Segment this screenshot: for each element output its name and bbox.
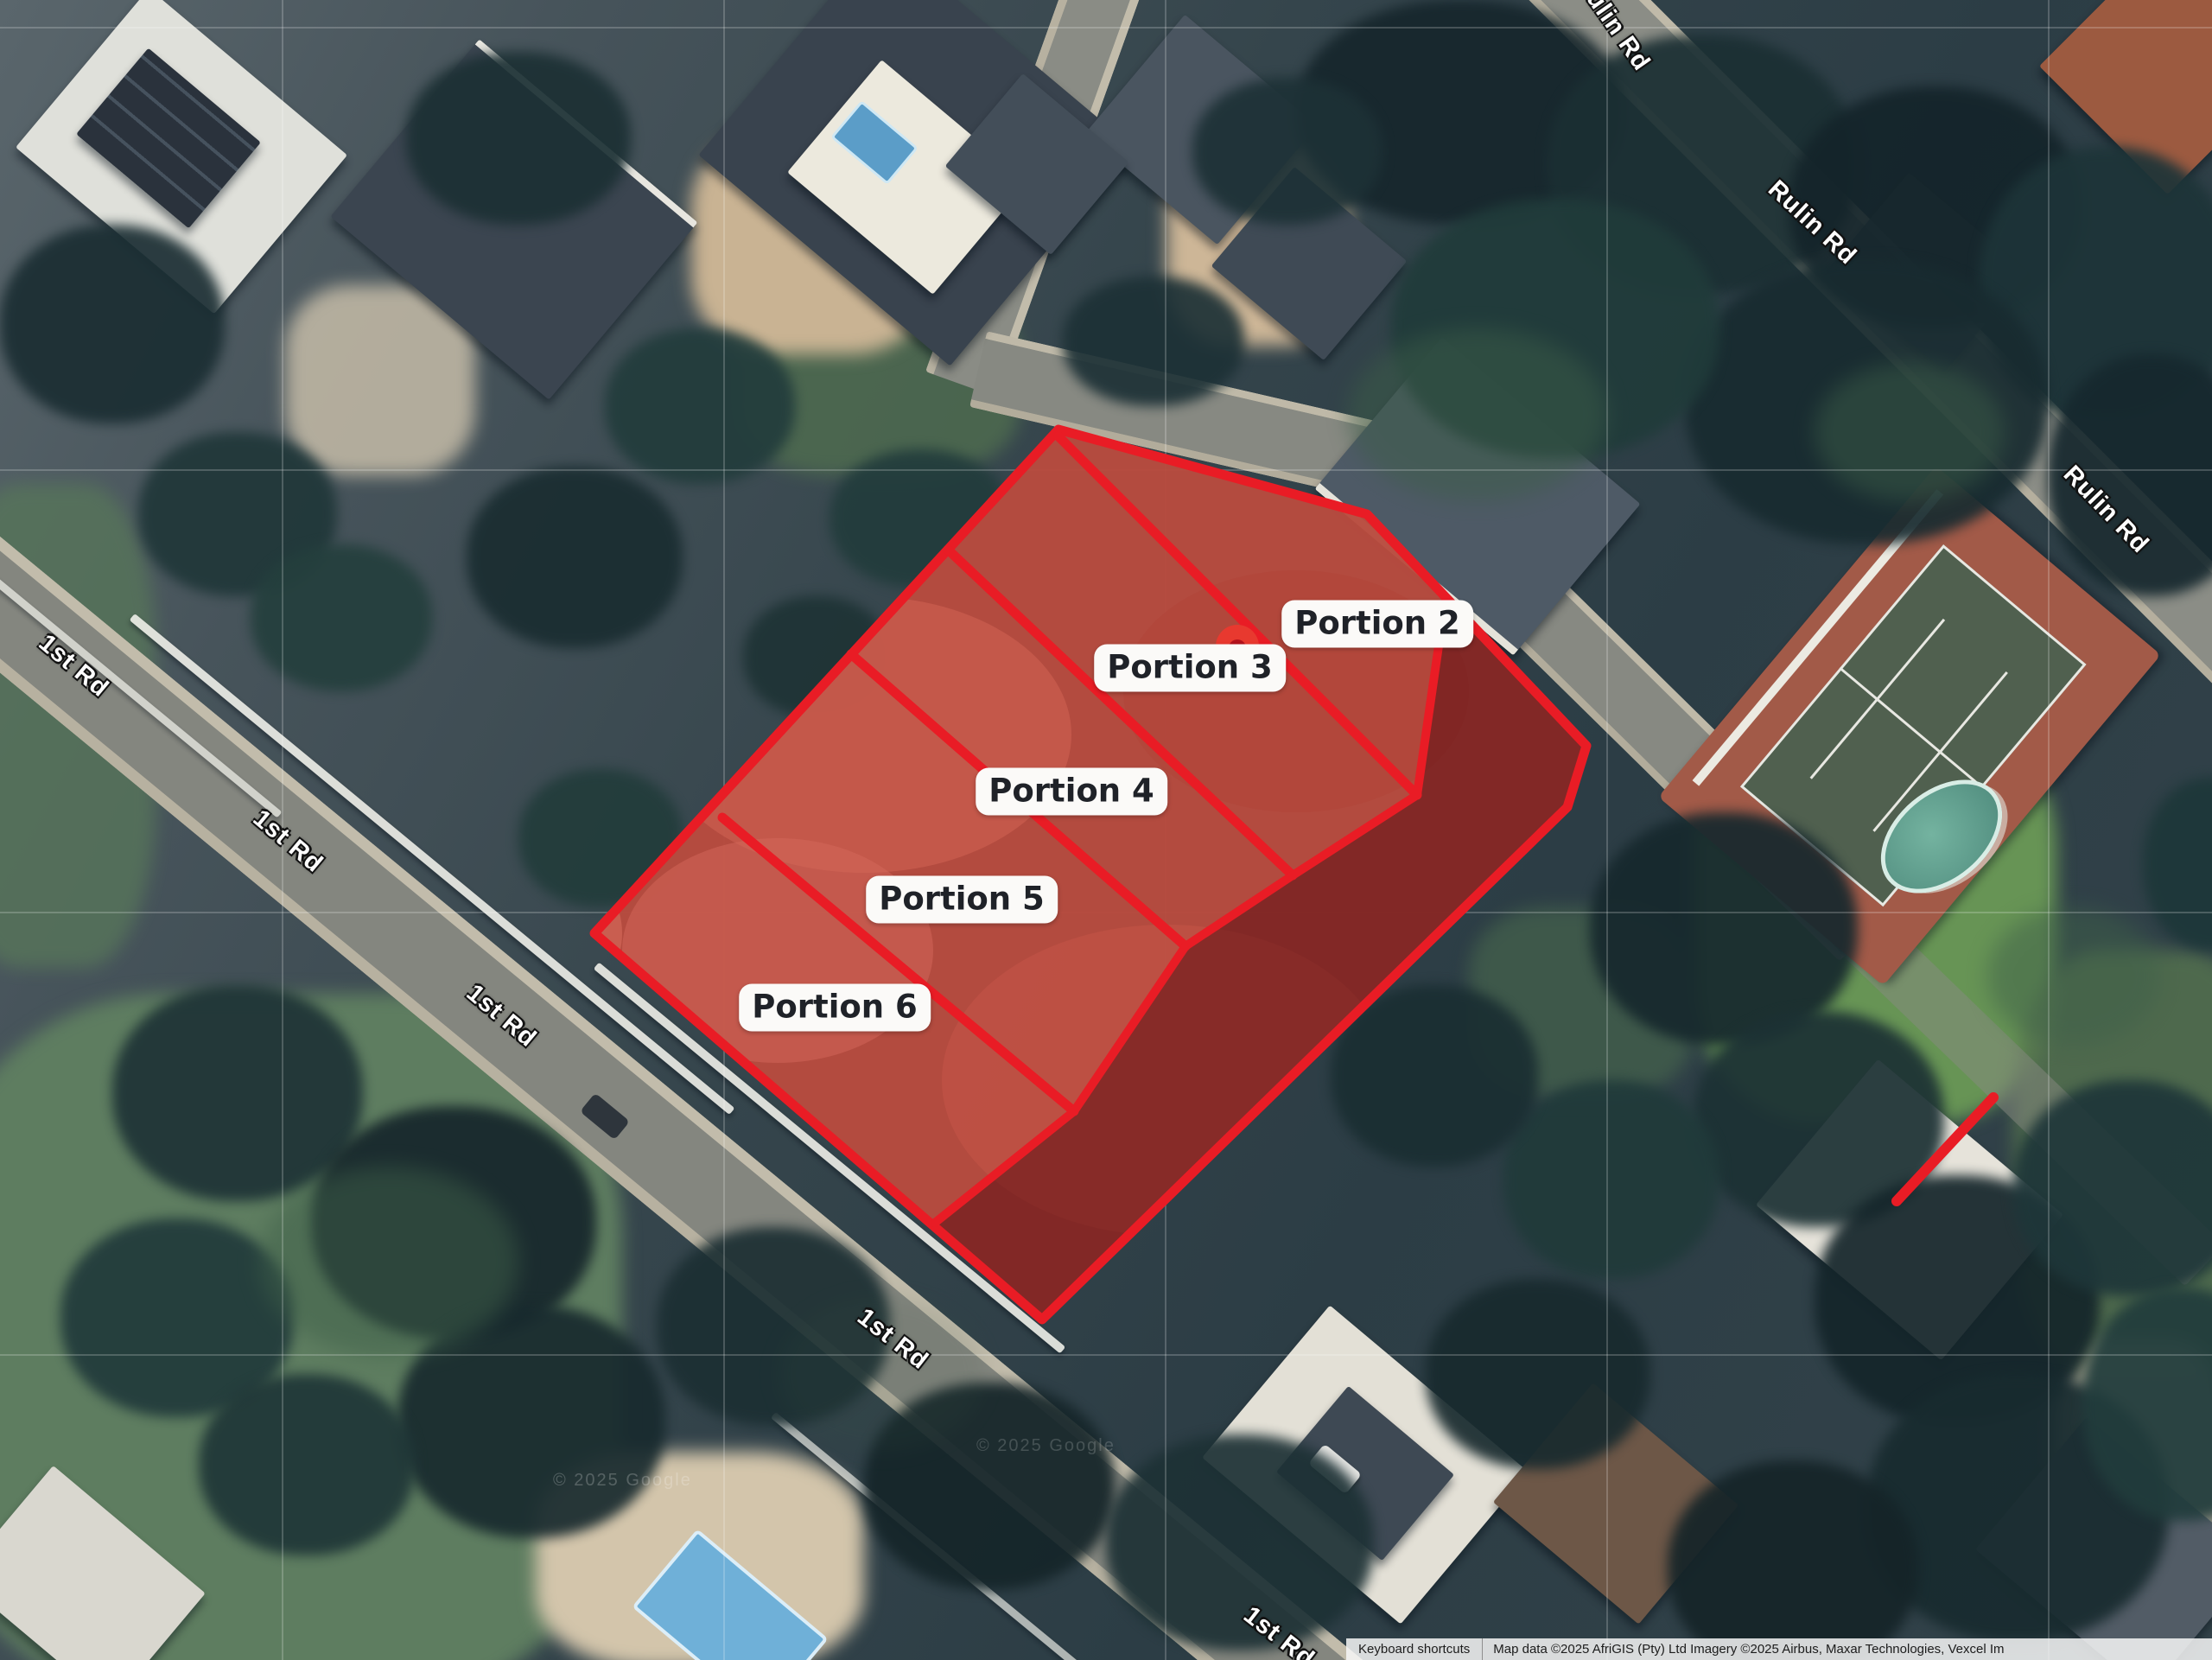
portion-label-2: Portion 2 (1281, 601, 1473, 648)
satellite-map[interactable]: 1st Rd 1st Rd 1st Rd 1st Rd 1st Rd Rulin… (0, 0, 2212, 1660)
attribution-bar: Keyboard shortcuts Map data ©2025 AfriGI… (1346, 1638, 2212, 1660)
portion-label-3: Portion 3 (1094, 645, 1286, 692)
portion-label-6: Portion 6 (739, 984, 931, 1032)
map-data-attribution: Map data ©2025 AfriGIS (Pty) Ltd Imagery… (1483, 1638, 2004, 1660)
portion-label-4: Portion 4 (976, 768, 1167, 816)
portion-label-5: Portion 5 (866, 876, 1058, 924)
keyboard-shortcuts-button[interactable]: Keyboard shortcuts (1346, 1638, 1483, 1660)
